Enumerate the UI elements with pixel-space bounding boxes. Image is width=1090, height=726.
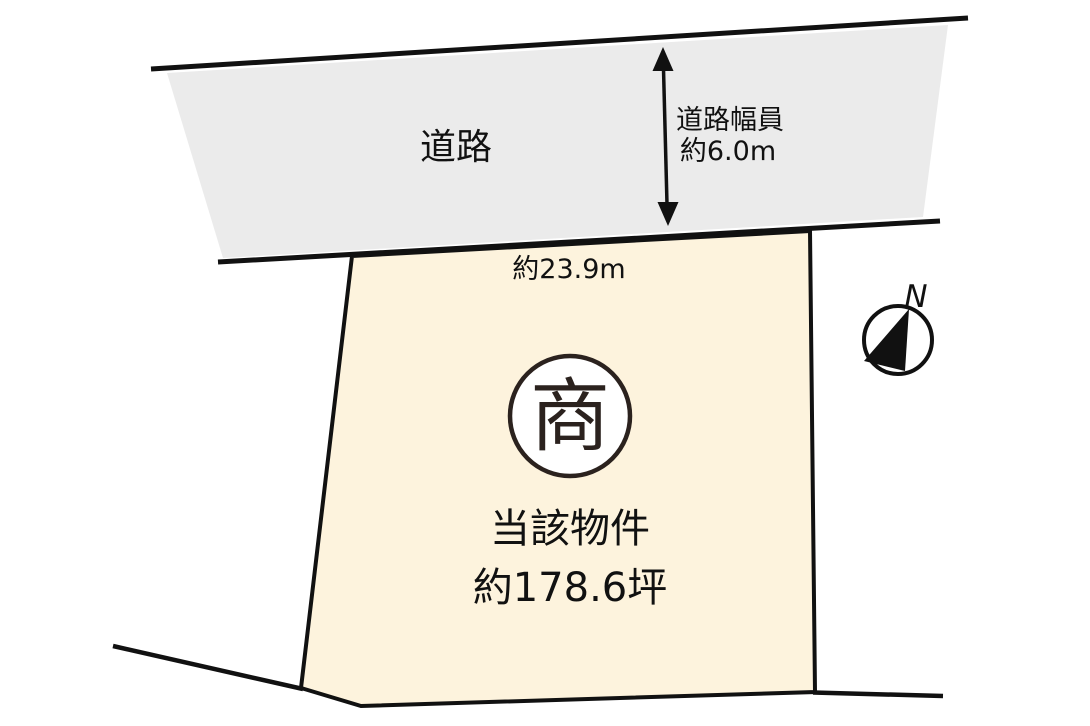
compass-north-label: N — [904, 279, 927, 315]
southwest-boundary-line — [113, 646, 303, 689]
road-width-label-line1: 道路幅員 — [676, 105, 784, 136]
site-plan-diagram: 道路 道路幅員 約6.0m 約23.9m 商 当該物件 約178.6坪 N — [0, 0, 1090, 726]
zoning-badge: 商 — [510, 356, 630, 476]
compass: N — [864, 279, 932, 374]
site-plan-canvas: 道路 道路幅員 約6.0m 約23.9m 商 当該物件 約178.6坪 N — [0, 0, 1090, 726]
frontage-dimension-label: 約23.9m — [512, 254, 625, 285]
lot-area-label: 約178.6坪 — [473, 565, 668, 611]
zoning-label: 商 — [530, 370, 610, 463]
lot-name-label: 当該物件 — [490, 506, 650, 552]
southeast-boundary-line — [813, 693, 943, 697]
road-label: 道路 — [420, 127, 492, 168]
road-width-label-line2: 約6.0m — [680, 136, 776, 167]
